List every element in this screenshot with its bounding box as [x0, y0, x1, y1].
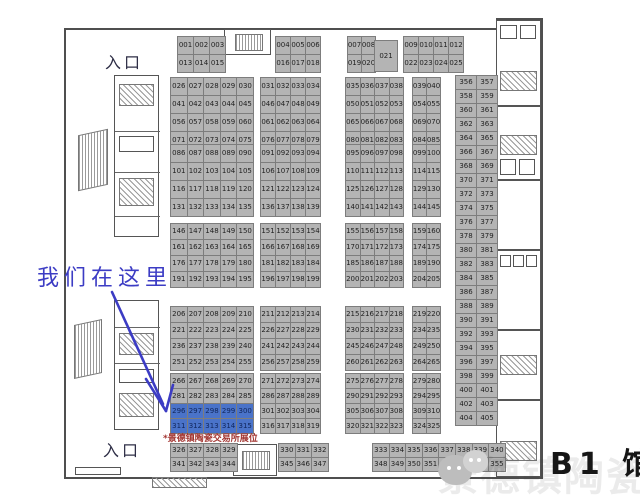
- booth-115: 115: [427, 163, 440, 180]
- booth-395: 395: [477, 342, 497, 355]
- booth-group-b2-2: 0310320330340460470480490610620630640760…: [260, 77, 321, 150]
- booth-334: 334: [390, 444, 406, 457]
- booth-130: 130: [427, 181, 440, 198]
- booth-024: 024: [434, 55, 448, 72]
- booth-374: 374: [456, 202, 476, 215]
- booth-360: 360: [456, 104, 476, 117]
- booth-group-right-col: 3563573583593603613623633643653663673683…: [455, 75, 498, 426]
- booth-group-bot-1: 326327328329341342343344: [170, 443, 238, 472]
- booth-361: 361: [477, 104, 497, 117]
- booth-257: 257: [276, 355, 290, 370]
- booth-240: 240: [237, 339, 253, 354]
- booth-group-b5-3: 2152162172182302312322332452462472482602…: [345, 306, 404, 371]
- booth-105: 105: [237, 163, 253, 180]
- booth-284: 284: [221, 389, 237, 403]
- booth-373: 373: [477, 188, 497, 201]
- booth-167: 167: [276, 240, 290, 255]
- booth-231: 231: [361, 323, 375, 338]
- booth-031: 031: [261, 78, 275, 95]
- booth-185: 185: [346, 256, 360, 271]
- booth-293: 293: [390, 389, 404, 403]
- booth-225: 225: [237, 323, 253, 338]
- booth-004: 004: [276, 37, 290, 54]
- booth-144: 144: [413, 199, 426, 216]
- booth-292: 292: [375, 389, 389, 403]
- booth-148: 148: [204, 224, 220, 239]
- booth-046: 046: [261, 96, 275, 113]
- booth-group-top-1: 001002003013014015: [177, 36, 226, 73]
- booth-011: 011: [434, 37, 448, 54]
- booth-198: 198: [291, 272, 305, 287]
- booth-364: 364: [456, 132, 476, 145]
- booth-124: 124: [306, 181, 320, 198]
- booth-205: 205: [427, 272, 440, 287]
- booth-221: 221: [171, 323, 187, 338]
- booth-026: 026: [171, 78, 187, 95]
- booth-103: 103: [204, 163, 220, 180]
- booth-335: 335: [406, 444, 422, 457]
- booth-398: 398: [456, 370, 476, 383]
- booth-190: 190: [427, 256, 440, 271]
- booth-307: 307: [375, 404, 389, 418]
- booth-140: 140: [346, 199, 360, 216]
- booth-362: 362: [456, 118, 476, 131]
- booth-056: 056: [171, 114, 187, 131]
- booth-062: 062: [276, 114, 290, 131]
- booth-223: 223: [204, 323, 220, 338]
- booth-066: 066: [361, 114, 375, 131]
- booth-184: 184: [306, 256, 320, 271]
- booth-138: 138: [291, 199, 305, 216]
- booth-139: 139: [306, 199, 320, 216]
- booth-059: 059: [221, 114, 237, 131]
- small-room: [500, 25, 517, 39]
- booth-260: 260: [346, 355, 360, 370]
- booth-363: 363: [477, 118, 497, 131]
- booth-270: 270: [237, 374, 253, 388]
- booth-301: 301: [261, 404, 275, 418]
- booth-375: 375: [477, 202, 497, 215]
- booth-310: 310: [427, 404, 440, 418]
- booth-302: 302: [276, 404, 290, 418]
- booth-131: 131: [171, 199, 187, 216]
- booth-181: 181: [261, 256, 275, 271]
- booth-067: 067: [375, 114, 389, 131]
- booth-195: 195: [237, 272, 253, 287]
- booth-036: 036: [361, 78, 375, 95]
- booth-305: 305: [346, 404, 360, 418]
- booth-104: 104: [221, 163, 237, 180]
- booth-099: 099: [413, 145, 426, 162]
- booth-189: 189: [413, 256, 426, 271]
- booth-group-b4-2: 1511521531541661671681691811821831841961…: [260, 223, 321, 288]
- booth-366: 366: [456, 146, 476, 159]
- booth-106: 106: [261, 163, 275, 180]
- small-room: [500, 255, 511, 267]
- booth-262: 262: [375, 355, 389, 370]
- outer-wall-top: [64, 28, 498, 30]
- booth-399: 399: [477, 370, 497, 383]
- booth-147: 147: [188, 224, 204, 239]
- booth-277: 277: [375, 374, 389, 388]
- booth-215: 215: [346, 307, 360, 322]
- booth-239: 239: [221, 339, 237, 354]
- booth-142: 142: [375, 199, 389, 216]
- booth-065: 065: [346, 114, 360, 131]
- booth-359: 359: [477, 90, 497, 103]
- booth-404: 404: [456, 412, 476, 425]
- booth-317: 317: [276, 419, 290, 433]
- booth-016: 016: [276, 55, 290, 72]
- booth-group-b2-1: 0260270280290300410420430440450560570580…: [170, 77, 254, 150]
- booth-047: 047: [276, 96, 290, 113]
- booth-283: 283: [204, 389, 220, 403]
- entrance-label-top: 入口: [105, 49, 143, 73]
- booth-055: 055: [427, 96, 440, 113]
- booth-282: 282: [188, 389, 204, 403]
- booth-323: 323: [390, 419, 404, 433]
- booth-227: 227: [276, 323, 290, 338]
- booth-379: 379: [477, 230, 497, 243]
- booth-063: 063: [291, 114, 305, 131]
- booth-376: 376: [456, 216, 476, 229]
- booth-159: 159: [413, 224, 426, 239]
- booth-098: 098: [390, 145, 404, 162]
- booth-126: 126: [361, 181, 375, 198]
- stairs-icon: [119, 84, 154, 106]
- left-utility-block-lower: [114, 300, 159, 430]
- booth-367: 367: [477, 146, 497, 159]
- booth-217: 217: [375, 307, 389, 322]
- booth-015: 015: [210, 55, 225, 72]
- outer-wall-left: [64, 28, 66, 478]
- booth-252: 252: [188, 355, 204, 370]
- booth-043: 043: [204, 96, 220, 113]
- booth-033: 033: [291, 78, 305, 95]
- booth-299: 299: [221, 404, 237, 418]
- booth-054: 054: [413, 96, 426, 113]
- booth-235: 235: [427, 323, 440, 338]
- booth-356: 356: [456, 76, 476, 89]
- booth-347: 347: [312, 458, 328, 471]
- room-divider: [115, 363, 160, 364]
- booth-294: 294: [413, 389, 426, 403]
- elevator-room: [500, 159, 516, 175]
- booth-032: 032: [276, 78, 290, 95]
- booth-387: 387: [477, 286, 497, 299]
- booth-245: 245: [346, 339, 360, 354]
- booth-177: 177: [188, 256, 204, 271]
- booth-226: 226: [261, 323, 275, 338]
- booth-275: 275: [346, 374, 360, 388]
- booth-255: 255: [237, 355, 253, 370]
- booth-060: 060: [237, 114, 253, 131]
- booth-027: 027: [188, 78, 204, 95]
- booth-384: 384: [456, 272, 476, 285]
- booth-057: 057: [188, 114, 204, 131]
- booth-087: 087: [188, 145, 204, 162]
- booth-group-b4-1: 1461471481491501611621631641651761771781…: [170, 223, 254, 288]
- booth-218: 218: [390, 307, 404, 322]
- booth-107: 107: [276, 163, 290, 180]
- booth-132: 132: [188, 199, 204, 216]
- booth-247: 247: [375, 339, 389, 354]
- booth-309: 309: [413, 404, 426, 418]
- booth-134: 134: [221, 199, 237, 216]
- booth-002: 002: [194, 37, 209, 54]
- booth-196: 196: [261, 272, 275, 287]
- booth-group-b3-3: 0950960970981101111121131251261271281401…: [345, 144, 404, 217]
- stairs-icon: [500, 71, 537, 91]
- booth-308: 308: [390, 404, 404, 418]
- booth-230: 230: [346, 323, 360, 338]
- booth-276: 276: [361, 374, 375, 388]
- elevator-room: [119, 136, 154, 152]
- booth-343: 343: [204, 458, 220, 471]
- booth-037: 037: [375, 78, 389, 95]
- booth-group-b3-1: 0860870880890901011021031041051161171181…: [170, 144, 254, 217]
- booth-group-b6-1: 2662672682692702812822832842852962972982…: [170, 373, 254, 434]
- escalator-icon: [78, 129, 108, 191]
- booth-348: 348: [373, 458, 389, 471]
- booth-068: 068: [390, 114, 404, 131]
- booth-238: 238: [204, 339, 220, 354]
- booth-group-b4-4: 159160174175189190204205: [412, 223, 441, 288]
- booth-174: 174: [413, 240, 426, 255]
- booth-393: 393: [477, 328, 497, 341]
- booth-014: 014: [194, 55, 209, 72]
- booth-028: 028: [204, 78, 220, 95]
- booth-333: 333: [373, 444, 389, 457]
- stairs-icon: [119, 178, 154, 206]
- floorplan-canvas: 0010020030130140150040050060160170180070…: [0, 0, 640, 504]
- booth-009: 009: [404, 37, 418, 54]
- booth-386: 386: [456, 286, 476, 299]
- booth-321: 321: [361, 419, 375, 433]
- booth-298: 298: [204, 404, 220, 418]
- booth-169: 169: [306, 240, 320, 255]
- booth-244: 244: [306, 339, 320, 354]
- booth-035: 035: [346, 78, 360, 95]
- booth-214: 214: [306, 307, 320, 322]
- escalator-icon: [74, 319, 102, 379]
- booth-267: 267: [188, 374, 204, 388]
- booth-125: 125: [346, 181, 360, 198]
- booth-204: 204: [413, 272, 426, 287]
- booth-116: 116: [171, 181, 187, 198]
- booth-058: 058: [204, 114, 220, 131]
- booth-113: 113: [390, 163, 404, 180]
- booth-109: 109: [306, 163, 320, 180]
- booth-264: 264: [413, 355, 426, 370]
- booth-385: 385: [477, 272, 497, 285]
- booth-201: 201: [361, 272, 375, 287]
- booth-234: 234: [413, 323, 426, 338]
- booth-010: 010: [419, 37, 433, 54]
- booth-243: 243: [291, 339, 305, 354]
- booth-101: 101: [171, 163, 187, 180]
- booth-group-b5-1: 2062072082092102212222232242252362372382…: [170, 306, 254, 371]
- booth-211: 211: [261, 307, 275, 322]
- booth-345: 345: [279, 458, 295, 471]
- booth-121: 121: [261, 181, 275, 198]
- booth-129: 129: [413, 181, 426, 198]
- booth-197: 197: [276, 272, 290, 287]
- booth-236: 236: [171, 339, 187, 354]
- booth-316: 316: [261, 419, 275, 433]
- entrance-label-bottom: 入口: [103, 437, 141, 461]
- stairs-icon: [119, 393, 154, 417]
- booth-210: 210: [237, 307, 253, 322]
- booth-382: 382: [456, 258, 476, 271]
- booth-145: 145: [427, 199, 440, 216]
- room-divider: [115, 172, 160, 173]
- entrance-vestibule: [152, 477, 207, 488]
- stairs-icon: [500, 355, 537, 375]
- booth-303: 303: [291, 404, 305, 418]
- booth-119: 119: [221, 181, 237, 198]
- booth-228: 228: [291, 323, 305, 338]
- we-are-here-note: 我们在这里: [37, 260, 172, 292]
- booth-188: 188: [390, 256, 404, 271]
- booth-005: 005: [291, 37, 305, 54]
- booth-285: 285: [237, 389, 253, 403]
- booth-097: 097: [375, 145, 389, 162]
- booth-380: 380: [456, 244, 476, 257]
- booth-328: 328: [204, 444, 220, 457]
- booth-154: 154: [306, 224, 320, 239]
- booth-318: 318: [291, 419, 305, 433]
- booth-029: 029: [221, 78, 237, 95]
- booth-220: 220: [427, 307, 440, 322]
- booth-202: 202: [375, 272, 389, 287]
- booth-401: 401: [477, 384, 497, 397]
- booth-403: 403: [477, 398, 497, 411]
- booth-025: 025: [449, 55, 463, 72]
- booth-069: 069: [413, 114, 426, 131]
- booth-155: 155: [346, 224, 360, 239]
- booth-group-top-021: 021: [374, 40, 398, 72]
- booth-391: 391: [477, 314, 497, 327]
- booth-038: 038: [390, 78, 404, 95]
- booth-117: 117: [188, 181, 204, 198]
- booth-330: 330: [279, 444, 295, 457]
- booth-250: 250: [427, 339, 440, 354]
- booth-120: 120: [237, 181, 253, 198]
- booth-263: 263: [390, 355, 404, 370]
- booth-044: 044: [221, 96, 237, 113]
- booth-040: 040: [427, 78, 440, 95]
- top-stair-block: [224, 29, 271, 55]
- booth-242: 242: [276, 339, 290, 354]
- booth-001: 001: [178, 37, 193, 54]
- booth-258: 258: [291, 355, 305, 370]
- booth-229: 229: [306, 323, 320, 338]
- booth-group-b2-3: 0350360370380500510520530650660670680800…: [345, 77, 404, 150]
- booth-344: 344: [221, 458, 237, 471]
- booth-286: 286: [261, 389, 275, 403]
- booth-381: 381: [477, 244, 497, 257]
- booth-191: 191: [171, 272, 187, 287]
- stairs-icon: [500, 135, 537, 155]
- booth-400: 400: [456, 384, 476, 397]
- booth-173: 173: [390, 240, 404, 255]
- hall-title: B1 馆: [550, 439, 640, 483]
- booth-017: 017: [291, 55, 305, 72]
- bottom-stair-block: [233, 444, 277, 476]
- booth-160: 160: [427, 224, 440, 239]
- booth-group-b6-2: 2712722732742862872882893013023033043163…: [260, 373, 321, 434]
- small-room: [520, 25, 536, 39]
- booth-207: 207: [188, 307, 204, 322]
- booth-331: 331: [296, 444, 312, 457]
- booth-254: 254: [221, 355, 237, 370]
- booth-137: 137: [276, 199, 290, 216]
- elevator-room: [119, 369, 154, 383]
- booth-045: 045: [237, 96, 253, 113]
- booth-241: 241: [261, 339, 275, 354]
- booth-358: 358: [456, 90, 476, 103]
- booth-182: 182: [276, 256, 290, 271]
- booth-219: 219: [413, 307, 426, 322]
- booth-192: 192: [188, 272, 204, 287]
- booth-019: 019: [348, 55, 361, 72]
- booth-259: 259: [306, 355, 320, 370]
- booth-289: 289: [306, 389, 320, 403]
- booth-070: 070: [427, 114, 440, 131]
- booth-332: 332: [312, 444, 328, 457]
- booth-388: 388: [456, 300, 476, 313]
- booth-172: 172: [375, 240, 389, 255]
- booth-368: 368: [456, 160, 476, 173]
- booth-322: 322: [375, 419, 389, 433]
- right-utility-room-5: [496, 330, 541, 400]
- booth-304: 304: [306, 404, 320, 418]
- booth-178: 178: [204, 256, 220, 271]
- booth-170: 170: [346, 240, 360, 255]
- booth-052: 052: [375, 96, 389, 113]
- booth-096: 096: [361, 145, 375, 162]
- stairs-icon: [119, 333, 154, 355]
- booth-392: 392: [456, 328, 476, 341]
- booth-291: 291: [361, 389, 375, 403]
- booth-152: 152: [276, 224, 290, 239]
- booth-389: 389: [477, 300, 497, 313]
- booth-064: 064: [306, 114, 320, 131]
- booth-group-top-2: 004005006016017018: [275, 36, 321, 73]
- booth-group-b2-4: 039040054055069070084085: [412, 77, 441, 150]
- booth-149: 149: [221, 224, 237, 239]
- booth-216: 216: [361, 307, 375, 322]
- booth-295: 295: [427, 389, 440, 403]
- booth-319: 319: [306, 419, 320, 433]
- booth-053: 053: [390, 96, 404, 113]
- booth-405: 405: [477, 412, 497, 425]
- left-utility-block-upper: [114, 75, 159, 237]
- booth-390: 390: [456, 314, 476, 327]
- booth-112: 112: [375, 163, 389, 180]
- booth-022: 022: [404, 55, 418, 72]
- booth-187: 187: [375, 256, 389, 271]
- booth-007: 007: [348, 37, 361, 54]
- booth-224: 224: [221, 323, 237, 338]
- booth-021: 021: [375, 41, 397, 71]
- booth-266: 266: [171, 374, 187, 388]
- booth-253: 253: [204, 355, 220, 370]
- booth-158: 158: [390, 224, 404, 239]
- room-divider: [115, 216, 160, 217]
- booth-306: 306: [361, 404, 375, 418]
